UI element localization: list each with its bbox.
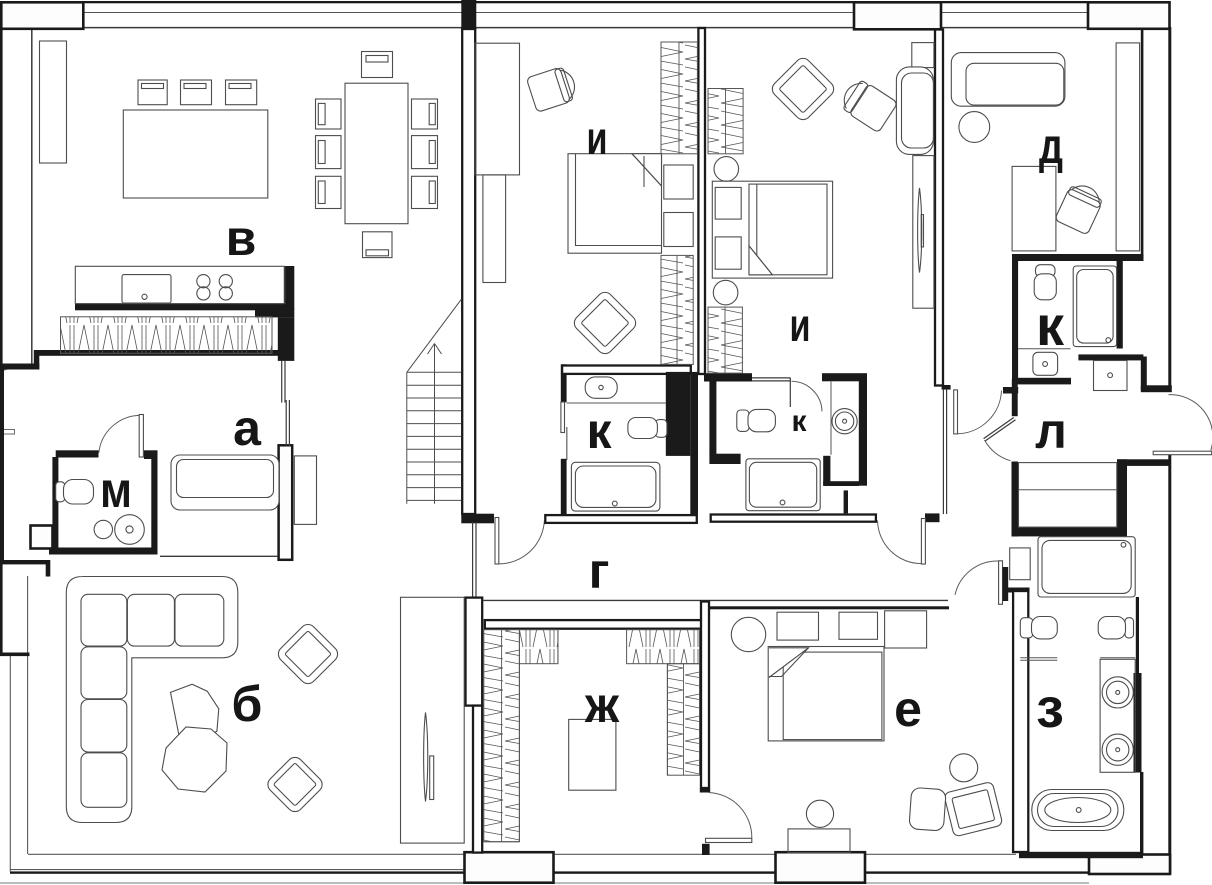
svg-text:е: е (894, 681, 922, 737)
svg-text:и: и (790, 299, 811, 351)
svg-text:в: в (226, 210, 257, 266)
svg-text:л: л (1035, 403, 1067, 459)
svg-text:г: г (589, 543, 610, 599)
svg-text:к: к (791, 405, 807, 438)
svg-text:а: а (233, 400, 262, 456)
svg-text:м: м (100, 462, 132, 518)
svg-text:к: к (1036, 294, 1065, 357)
svg-text:з: з (1036, 676, 1064, 739)
svg-text:б: б (232, 676, 263, 732)
svg-text:ж: ж (584, 677, 619, 733)
svg-text:д: д (1039, 118, 1063, 174)
svg-text:и: и (587, 112, 608, 164)
svg-text:к: к (586, 403, 612, 459)
